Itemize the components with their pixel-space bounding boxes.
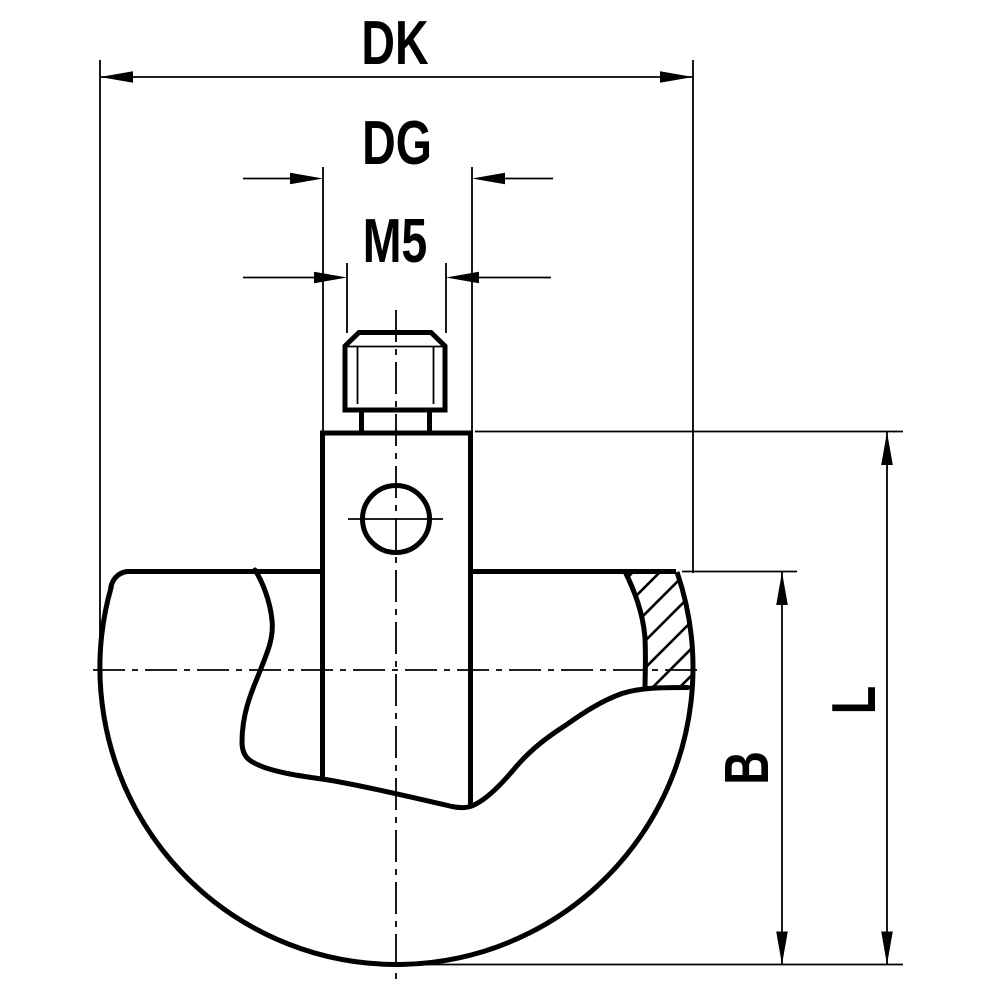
break-line — [242, 570, 688, 808]
dim-m5: M5 — [243, 205, 551, 333]
dim-label-dg: DG — [362, 107, 432, 177]
dim-label-m5: M5 — [363, 205, 428, 275]
dk-arrowhead-right — [660, 71, 693, 83]
b-arrowhead-top — [776, 572, 788, 605]
m5-arrowhead-left — [314, 272, 347, 284]
dim-label-l: L — [818, 686, 888, 714]
dim-b: B — [682, 572, 797, 965]
l-arrowhead-top — [881, 432, 893, 465]
drawing-svg: DK DG M5 B — [0, 0, 1000, 1000]
dg-arrowhead-left — [290, 173, 323, 185]
technical-drawing-canvas: DK DG M5 B — [0, 0, 1000, 1000]
m5-arrowhead-right — [446, 272, 479, 284]
dim-label-dk: DK — [361, 7, 429, 77]
dim-label-b: B — [711, 751, 781, 785]
flat-cut-line-left — [111, 572, 323, 589]
l-arrowhead-bottom — [881, 932, 893, 965]
section-hatch — [505, 560, 807, 700]
set-screw-head — [345, 333, 445, 411]
section-crescent — [505, 560, 807, 700]
dk-arrowhead-left — [100, 71, 133, 83]
dg-arrowhead-right — [472, 173, 505, 185]
b-arrowhead-bottom — [776, 932, 788, 965]
dim-l: L — [400, 432, 903, 965]
